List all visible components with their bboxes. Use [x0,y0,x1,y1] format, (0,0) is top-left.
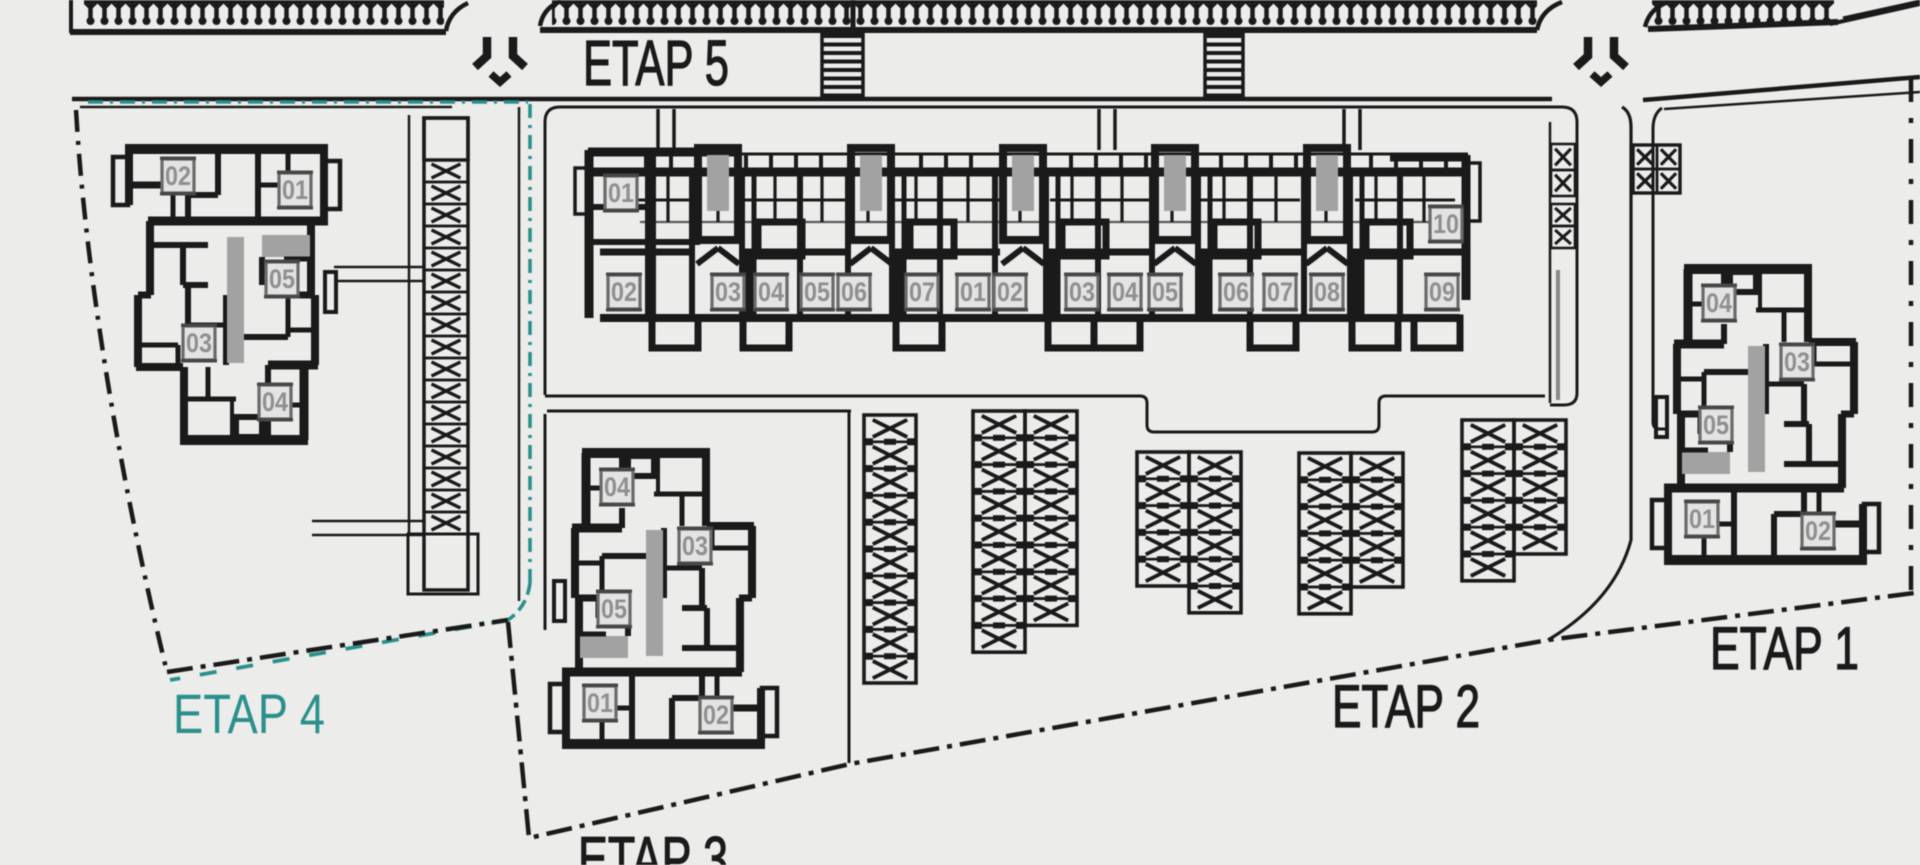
svg-text:03: 03 [1784,347,1810,377]
svg-text:ETAP 2: ETAP 2 [1332,673,1480,740]
svg-text:03: 03 [1069,277,1095,307]
svg-text:01: 01 [608,178,634,208]
svg-text:08: 08 [1314,277,1340,307]
svg-text:02: 02 [611,277,637,307]
svg-text:05: 05 [601,594,627,624]
svg-text:09: 09 [1429,277,1455,307]
svg-text:10: 10 [1433,209,1459,239]
svg-text:ETAP 3: ETAP 3 [578,825,728,865]
svg-text:04: 04 [1706,288,1732,318]
svg-text:02: 02 [997,277,1023,307]
svg-text:ETAP 5: ETAP 5 [583,27,729,99]
svg-text:04: 04 [758,277,784,307]
svg-text:01: 01 [587,688,613,718]
svg-text:02: 02 [703,700,729,730]
svg-text:03: 03 [186,328,212,358]
svg-text:07: 07 [909,277,935,307]
svg-text:05: 05 [269,264,295,294]
svg-text:07: 07 [1267,277,1293,307]
svg-text:03: 03 [715,277,741,307]
svg-text:04: 04 [604,472,630,502]
svg-text:04: 04 [262,387,288,417]
svg-text:02: 02 [165,161,191,191]
svg-text:01: 01 [282,175,308,205]
svg-text:03: 03 [682,531,708,561]
svg-text:05: 05 [1703,410,1729,440]
svg-text:05: 05 [804,277,830,307]
svg-text:06: 06 [1223,277,1249,307]
svg-text:ETAP 4: ETAP 4 [173,682,325,745]
svg-text:01: 01 [1689,504,1715,534]
svg-text:04: 04 [1112,277,1138,307]
svg-text:01: 01 [960,277,986,307]
svg-text:02: 02 [1805,516,1831,546]
svg-text:05: 05 [1152,277,1178,307]
svg-text:06: 06 [841,277,867,307]
svg-text:ETAP 1: ETAP 1 [1710,615,1859,682]
